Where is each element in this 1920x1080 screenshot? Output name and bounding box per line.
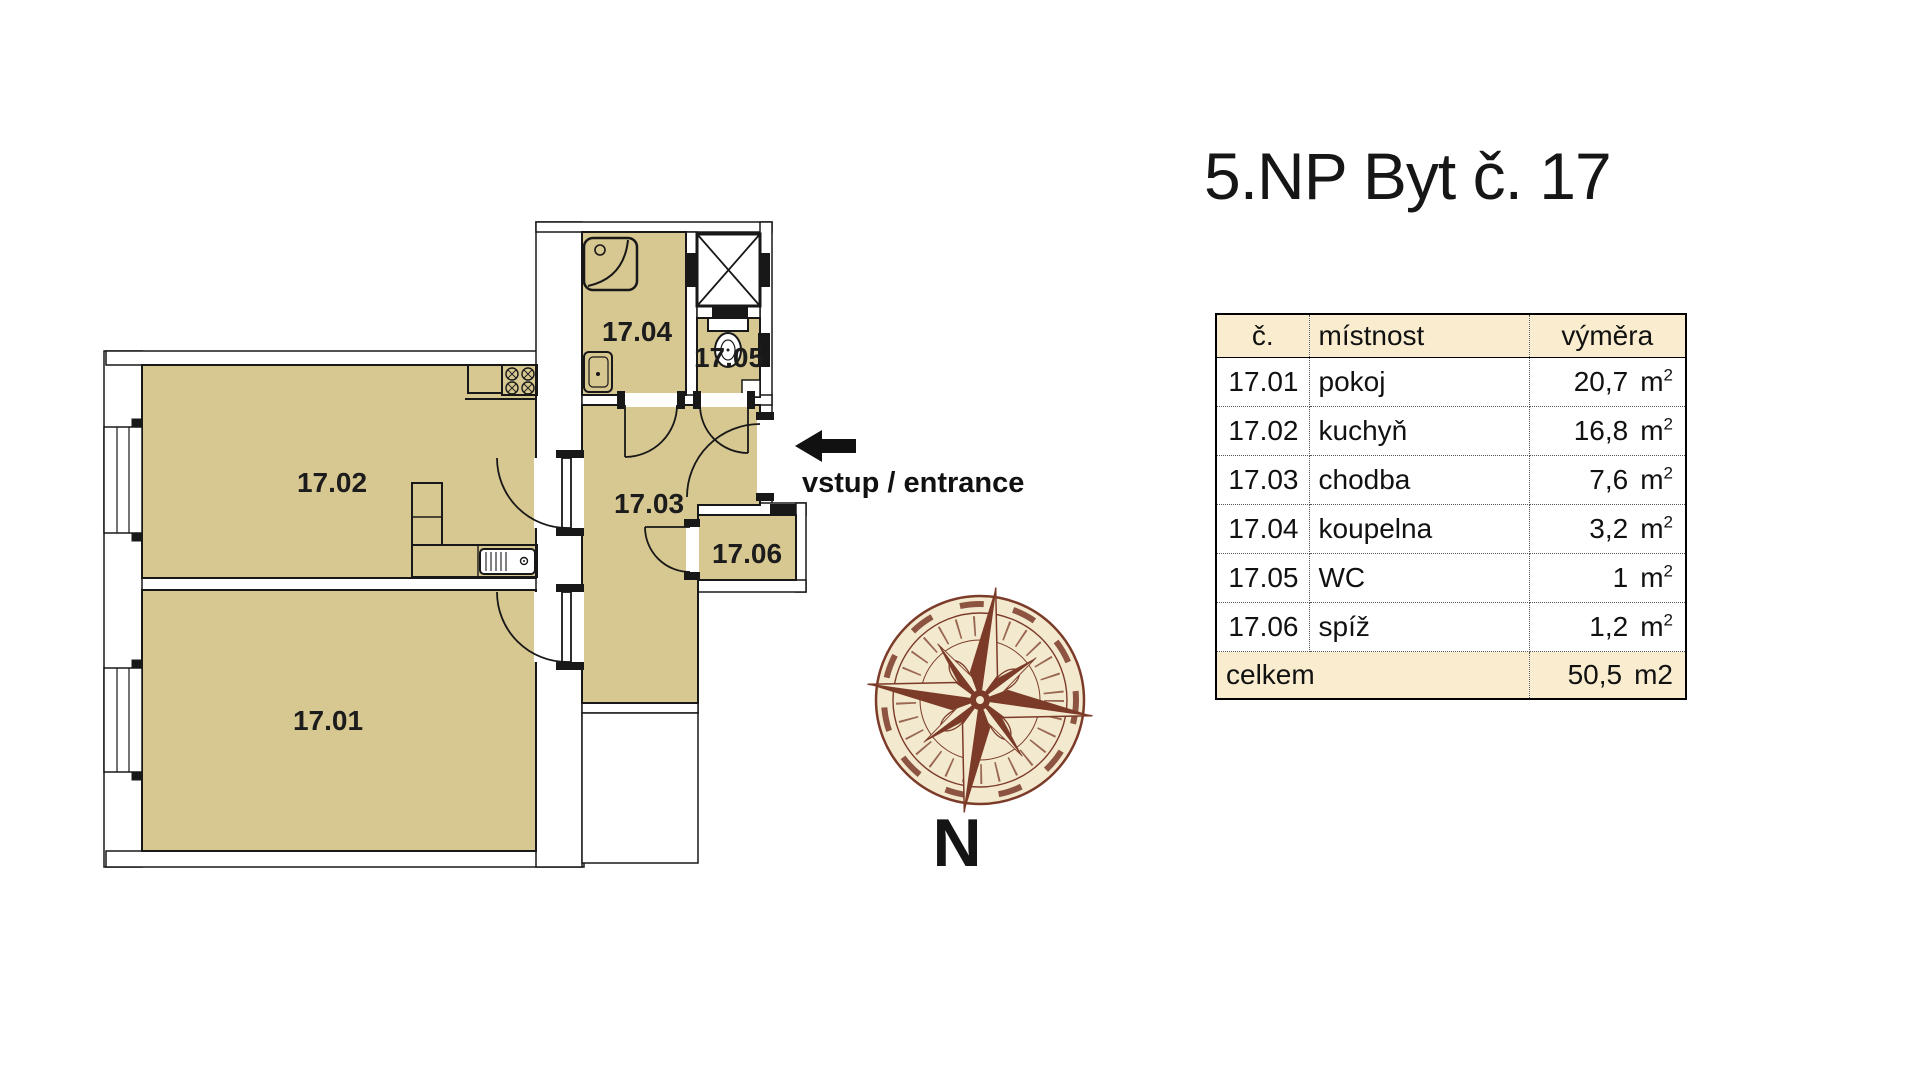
cell-room: spíž — [1309, 603, 1529, 652]
area-value: 16,8 — [1574, 415, 1629, 446]
door-leaf-17-01 — [562, 592, 571, 662]
toilet-tank — [708, 318, 748, 331]
area-table: č. místnost výměra 17.01 pokoj 20,7m2 17… — [1215, 313, 1687, 700]
wall-topbox-top — [536, 222, 772, 232]
area-unit: m2 — [1640, 415, 1673, 446]
col-header-room: místnost — [1309, 314, 1529, 358]
wall-hall-bottom — [582, 703, 698, 713]
cell-room: koupelna — [1309, 505, 1529, 554]
elevator — [697, 234, 760, 306]
label-room-17-03: 17.03 — [614, 488, 684, 519]
compass-north-label: N — [932, 805, 981, 881]
label-room-17-01: 17.01 — [293, 705, 363, 736]
area-value: 1 — [1613, 562, 1629, 593]
cell-area: 20,7m2 — [1529, 358, 1686, 407]
cell-room: pokoj — [1309, 358, 1529, 407]
col-header-number: č. — [1216, 314, 1309, 358]
table-row: 17.06 spíž 1,2m2 — [1216, 603, 1686, 652]
table-row: 17.05 WC 1m2 — [1216, 554, 1686, 603]
area-unit: m2 — [1640, 366, 1673, 397]
cell-number: 17.03 — [1216, 456, 1309, 505]
table-total-row: celkem 50,5m2 — [1216, 652, 1686, 700]
page-title: 5.NP Byt č. 17 — [1204, 138, 1611, 214]
pantry-vent — [770, 504, 796, 514]
cell-number: 17.04 — [1216, 505, 1309, 554]
col-header-area: výměra — [1529, 314, 1686, 358]
compass-rose-icon — [852, 572, 1107, 827]
cell-room: WC — [1309, 554, 1529, 603]
window-17-01 — [104, 668, 142, 772]
area-value: 7,6 — [1589, 464, 1628, 495]
cell-number: 17.02 — [1216, 407, 1309, 456]
table-row: 17.04 koupelna 3,2m2 — [1216, 505, 1686, 554]
label-room-17-06: 17.06 — [712, 538, 782, 569]
cell-room: chodba — [1309, 456, 1529, 505]
kitchen-sink — [480, 549, 535, 574]
wall-pantry-right — [796, 503, 806, 592]
cell-number: 17.06 — [1216, 603, 1309, 652]
label-room-17-04: 17.04 — [602, 316, 672, 347]
door-leaf-17-02 — [562, 458, 571, 528]
wall-vertical-core — [536, 222, 582, 867]
total-label: celkem — [1216, 652, 1529, 700]
wall-bottom-exterior — [106, 851, 584, 867]
room-17-04 — [582, 232, 686, 395]
label-room-17-02: 17.02 — [297, 467, 367, 498]
area-unit: m2 — [1640, 562, 1673, 593]
area-unit: m2 — [1634, 659, 1673, 690]
cell-area: 1,2m2 — [1529, 603, 1686, 652]
window-17-02 — [104, 427, 142, 533]
cell-area: 16,8m2 — [1529, 407, 1686, 456]
wall-pantry-bottom — [690, 580, 806, 592]
cell-area: 3,2m2 — [1529, 505, 1686, 554]
table-row: 17.03 chodba 7,6m2 — [1216, 456, 1686, 505]
area-value: 20,7 — [1574, 366, 1629, 397]
area-value: 3,2 — [1589, 513, 1628, 544]
table-row: 17.01 pokoj 20,7m2 — [1216, 358, 1686, 407]
area-value: 1,2 — [1589, 611, 1628, 642]
cell-area: 7,6m2 — [1529, 456, 1686, 505]
table-header-row: č. místnost výměra — [1216, 314, 1686, 358]
area-unit: m2 — [1640, 513, 1673, 544]
cell-number: 17.05 — [1216, 554, 1309, 603]
cell-area: 1m2 — [1529, 554, 1686, 603]
label-room-17-05: 17.05 — [694, 342, 764, 373]
total-area: 50,5m2 — [1529, 652, 1686, 700]
area-value: 50,5 — [1568, 659, 1623, 690]
entrance-arrow-icon — [795, 430, 856, 462]
elevator-sill — [712, 306, 748, 318]
wall-top-1702 — [106, 351, 560, 365]
table-row: 17.02 kuchyň 16,8m2 — [1216, 407, 1686, 456]
area-unit: m2 — [1640, 611, 1673, 642]
entrance-label: vstup / entrance — [802, 467, 1024, 499]
cell-number: 17.01 — [1216, 358, 1309, 407]
cell-room: kuchyň — [1309, 407, 1529, 456]
exterior-void-below-hall — [582, 713, 698, 863]
area-unit: m2 — [1640, 464, 1673, 495]
page: 17.02 17.01 17.04 17.05 17.03 17.06 vstu… — [0, 0, 1920, 1080]
